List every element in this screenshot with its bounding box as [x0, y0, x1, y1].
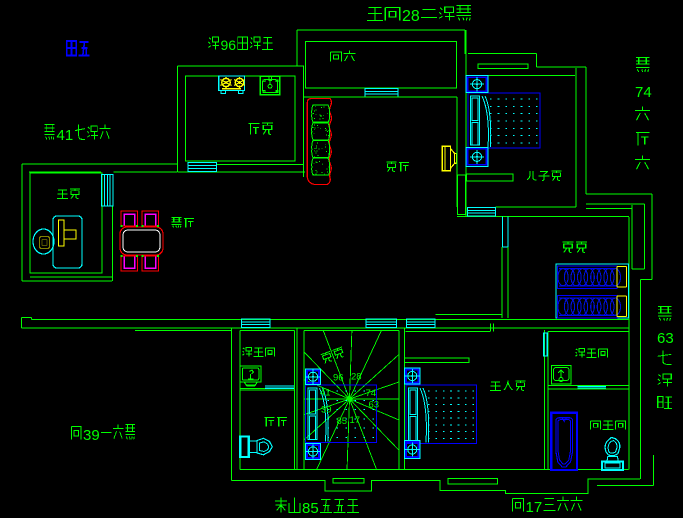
- svg-text:96: 96: [333, 373, 344, 384]
- svg-text:17: 17: [350, 415, 361, 426]
- svg-text:74: 74: [366, 388, 377, 399]
- svg-text:28: 28: [402, 8, 420, 25]
- svg-text:39: 39: [321, 405, 332, 416]
- svg-text:74: 74: [635, 84, 652, 101]
- svg-text:63: 63: [369, 400, 380, 411]
- svg-text:85: 85: [337, 416, 348, 427]
- svg-text:17: 17: [526, 499, 543, 516]
- svg-text:39: 39: [83, 427, 100, 444]
- svg-text:96: 96: [221, 37, 237, 53]
- svg-text:41: 41: [320, 388, 331, 399]
- svg-text:41: 41: [57, 127, 74, 144]
- svg-text:28: 28: [351, 372, 362, 383]
- svg-text:63: 63: [657, 330, 674, 347]
- svg-text:85: 85: [302, 500, 319, 517]
